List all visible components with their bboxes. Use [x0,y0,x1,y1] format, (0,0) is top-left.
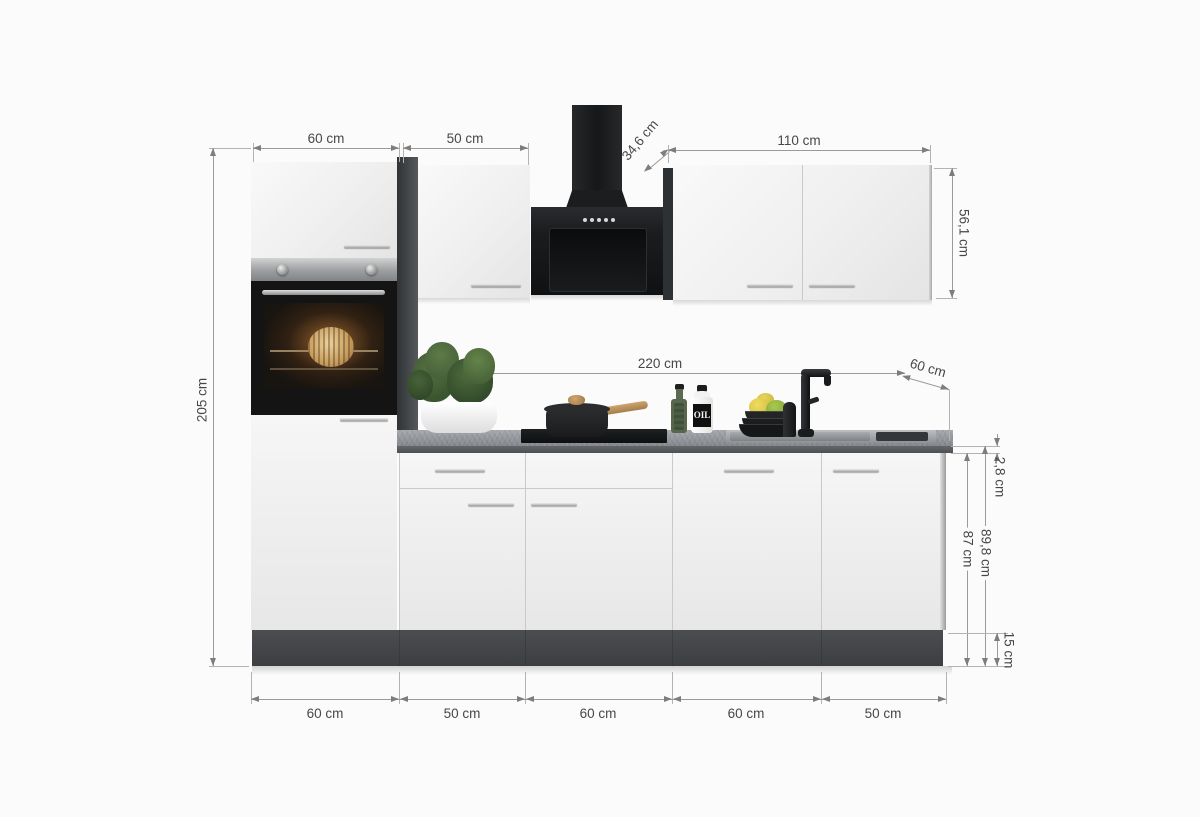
dim-label-total-height: 205 cm [195,375,210,425]
arrow-icon [949,290,955,298]
base-door-3-handle [724,469,774,472]
extension-line [528,143,529,165]
dim-label-bottom-2: 50 cm [444,706,481,721]
vinegar-bottle [671,384,689,433]
cabinet-shadow [531,295,663,301]
dim-label-plinth-height: 15 cm [1002,632,1017,669]
arrow-icon [994,658,1000,666]
plinth-seam [672,630,673,666]
arrow-icon [901,373,910,381]
cabinet-shadow [673,300,932,306]
oil-bottle-label: OIL [693,404,711,427]
dim-label-base-run-width: 220 cm [638,356,682,371]
dim-label-worktop-thickness: 2,8 cm [993,457,1008,498]
arrow-icon [253,145,261,151]
arrow-icon [822,696,830,702]
arrow-icon [922,147,930,153]
upper-cabinet-handle [471,284,521,287]
arrow-icon [391,696,399,702]
arrow-icon [400,696,408,702]
dim-line-wall-width [668,150,930,151]
arrow-icon [210,658,216,666]
arrow-icon [520,145,528,151]
wall-cabinet-left-handle [747,284,793,287]
dim-label-wall-depth: 34,6 cm [619,117,661,163]
saucepan-body [546,409,608,437]
extension-line [399,143,400,162]
hood-button [590,218,594,222]
dim-line-upper-width [403,148,528,149]
arrow-icon [938,696,946,702]
dim-label-tall-width: 60 cm [308,131,345,146]
drawer-gap [399,488,672,489]
dim-label-base-total-height: 89,8 cm [979,526,994,580]
base-door-2-handle [531,503,577,506]
dim-label-wall-width: 110 cm [777,133,820,148]
arrow-icon [668,147,676,153]
dim-label-bottom-5: 50 cm [865,706,902,721]
cooker-hood-body [531,207,663,295]
floor-shadow [252,666,952,675]
arrow-icon [673,696,681,702]
dim-label-upper-width: 50 cm [447,131,484,146]
hood-chimney-flare [566,190,628,208]
base-door-4-handle [833,469,879,472]
dim-label-worktop-depth: 60 cm [908,356,947,381]
arrow-icon [964,453,970,461]
tall-cabinet-top-door [251,162,397,258]
herb-plant [405,340,515,410]
sink-basin [876,432,928,441]
base-divider [821,453,822,630]
oven-rack [270,368,378,370]
arrow-icon [964,658,970,666]
oven-door-handle [262,290,385,295]
arrow-icon [982,658,988,666]
arrow-icon [994,633,1000,641]
extension-line [930,145,931,163]
tall-cabinet-bottom-door [251,415,397,630]
dim-line-total-height [213,148,214,666]
planter-pot [421,402,497,433]
arrow-icon [391,145,399,151]
extension-line [948,666,1008,667]
extension-line [951,453,1000,454]
dim-line-wall-cab-height [952,168,953,298]
cabinet-shadow [418,298,530,304]
oven [251,281,397,415]
dim-label-bottom-3: 60 cm [580,706,617,721]
arrow-icon [403,145,411,151]
oven-control-knob [366,264,377,275]
base-door-1-handle [468,503,514,506]
dim-label-bottom-1: 60 cm [307,706,344,721]
dim-label-bottom-4: 60 cm [728,706,765,721]
saucepan-lid-knob [568,395,585,405]
base-divider [399,453,400,630]
wall-cabinet-side-panel [663,168,673,300]
oven-window [264,303,384,389]
extension-line [949,391,950,441]
hood-button [604,218,608,222]
hood-chimney [572,105,622,197]
arrow-icon [251,696,259,702]
arrow-icon [526,696,534,702]
upper-cabinet-50 [418,165,530,298]
arrow-icon [982,446,988,454]
tall-cabinet-bottom-door-handle [340,418,388,421]
base-right-edge [940,453,946,630]
base-drawer-handle [435,469,485,472]
extension-line [951,446,1000,447]
plinth-seam [399,630,400,666]
arrow-icon [664,696,672,702]
extension-line [209,666,249,667]
dim-label-wall-cab-height: 56,1 cm [957,209,972,257]
hood-button [583,218,587,222]
arrow-icon [517,696,525,702]
arrow-icon [994,438,1000,446]
dim-label-base-height: 87 cm [961,528,976,571]
base-divider [672,453,673,630]
dim-line-tall-width [253,148,399,149]
kitchen-diagram: 220 cm [0,0,1200,817]
wall-cabinet-right-handle [809,284,855,287]
dim-line-bottom [251,699,946,700]
arrow-icon [210,148,216,156]
hood-glass-panel [549,228,647,292]
wall-cabinet-door-seam [802,165,803,300]
arrow-icon [813,696,821,702]
hood-button [597,218,601,222]
oil-bottle: OIL [691,385,713,433]
oven-control-knob [277,264,288,275]
extension-line [936,298,957,299]
hood-button [611,218,615,222]
worktop-front-edge [397,446,953,453]
tall-cabinet-top-door-handle [344,245,390,248]
arrow-icon [949,168,955,176]
extension-line [946,672,947,704]
base-divider [525,453,526,630]
plinth-seam [525,630,526,666]
plinth [252,630,943,666]
wall-cabinet-edge [929,165,932,300]
plinth-seam [821,630,822,666]
faucet [795,368,835,438]
